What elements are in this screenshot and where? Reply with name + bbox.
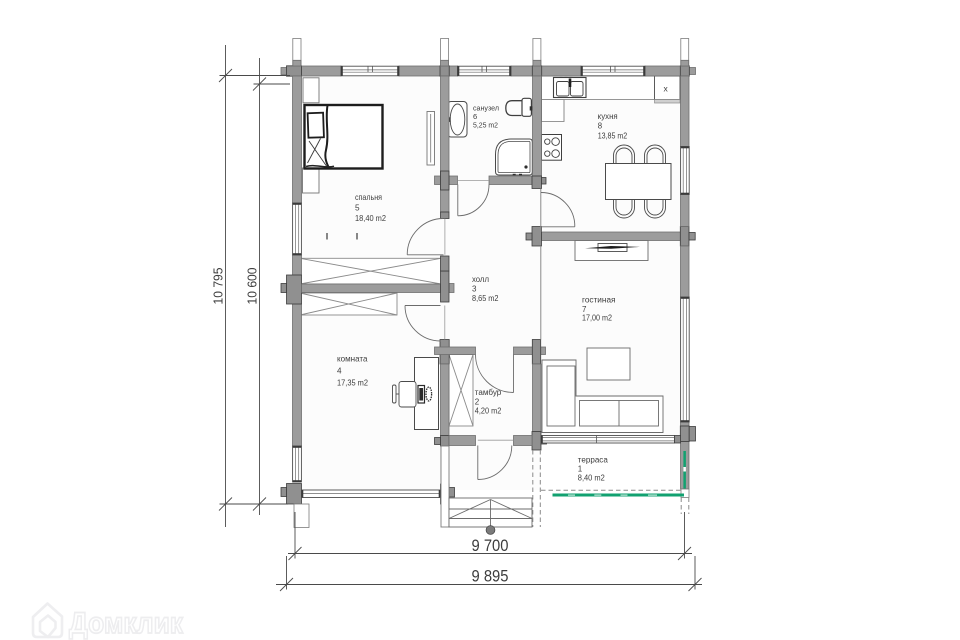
svg-text:8,65 m2: 8,65 m2 <box>472 294 499 303</box>
svg-text:8: 8 <box>598 122 602 131</box>
svg-text:9 895: 9 895 <box>472 568 509 586</box>
svg-text:кухня: кухня <box>598 112 618 121</box>
svg-text:Домклик: Домклик <box>69 607 184 640</box>
svg-text:4: 4 <box>337 367 342 376</box>
svg-text:4,20 m2: 4,20 m2 <box>475 407 502 416</box>
svg-text:10 795: 10 795 <box>212 267 226 304</box>
svg-text:13,85 m2: 13,85 m2 <box>598 132 628 141</box>
svg-text:спальня: спальня <box>355 193 382 202</box>
svg-text:комната: комната <box>337 355 368 364</box>
svg-text:9 700: 9 700 <box>472 537 509 555</box>
svg-text:3: 3 <box>472 285 477 294</box>
svg-text:17,00 m2: 17,00 m2 <box>582 314 612 323</box>
svg-text:гостиная: гостиная <box>582 296 616 305</box>
svg-text:5,25 m2: 5,25 m2 <box>473 121 498 130</box>
svg-text:8,40 m2: 8,40 m2 <box>578 474 606 483</box>
svg-text:1: 1 <box>578 465 583 474</box>
svg-text:терраса: терраса <box>578 456 609 465</box>
svg-text:тамбур: тамбур <box>475 388 502 397</box>
svg-text:5: 5 <box>355 204 360 213</box>
svg-text:17,35 m2: 17,35 m2 <box>337 379 368 388</box>
svg-text:18,40 m2: 18,40 m2 <box>355 214 386 223</box>
svg-text:холл: холл <box>472 275 489 284</box>
svg-text:10 600: 10 600 <box>246 267 260 304</box>
svg-text:2: 2 <box>475 398 480 407</box>
